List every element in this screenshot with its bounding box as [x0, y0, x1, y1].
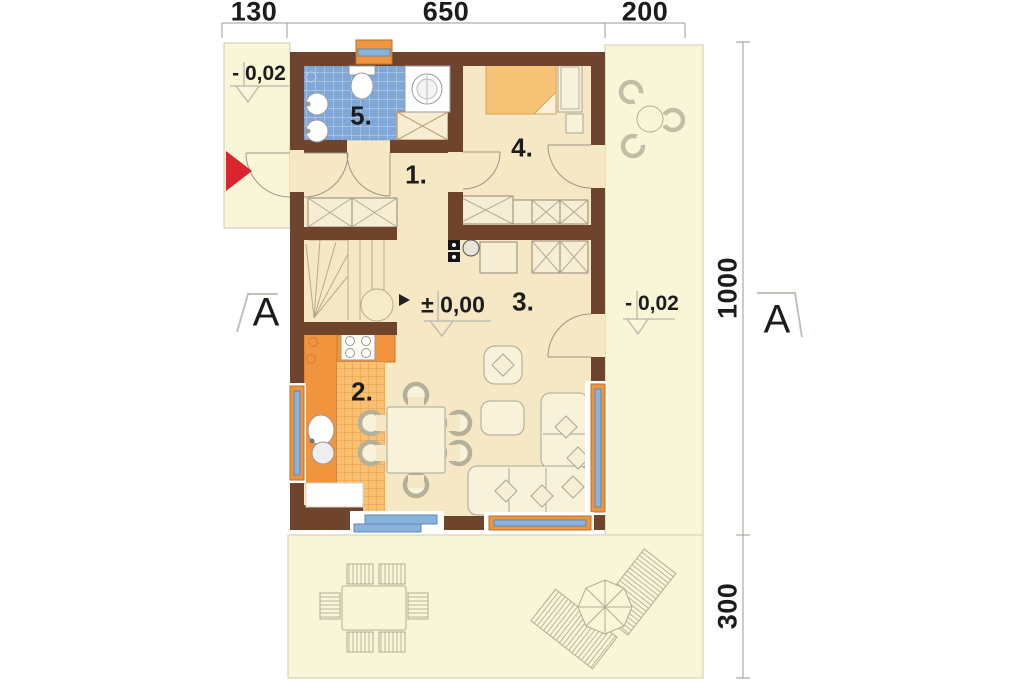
parasol-icon	[578, 580, 632, 634]
coffee-table	[481, 401, 524, 435]
chimney	[356, 40, 392, 64]
living-window-right	[595, 389, 601, 507]
kitchen-window	[294, 391, 300, 475]
level-label-interior: ± 0,00	[421, 292, 485, 319]
room-label-1: 1.	[405, 160, 427, 191]
dim-label-right-2: 300	[713, 583, 744, 630]
section-mark-right: A	[764, 298, 791, 343]
dim-label-top-2: 650	[423, 0, 470, 28]
room-label-3: 3.	[512, 287, 534, 318]
toilet-icon	[351, 73, 373, 99]
bedside-bench	[558, 64, 582, 112]
nightstand	[566, 114, 583, 133]
room-label-4: 4.	[511, 133, 533, 164]
level-label-porch: - 0,02	[232, 62, 286, 86]
section-mark-left: A	[253, 291, 280, 336]
entry-niche	[306, 483, 363, 507]
dim-label-top-1: 130	[231, 0, 278, 28]
dim-label-top-3: 200	[622, 0, 669, 28]
dining-table	[387, 407, 445, 473]
level-label-side: - 0,02	[625, 292, 679, 316]
stove-icon	[341, 333, 375, 360]
garden-dining-table	[342, 586, 406, 630]
sliding-door-panel	[354, 524, 421, 532]
dim-label-right-1: 1000	[713, 257, 744, 319]
room-label-2: 2.	[351, 377, 373, 408]
sliding-door-panel	[365, 515, 437, 524]
garden-round-table	[637, 106, 663, 132]
floor-plan-drawing	[0, 0, 1024, 682]
living-window-bottom	[494, 520, 586, 526]
floor-plan-page: 130 650 200 1000 300 - 0,02 ± 0,00 - 0,0…	[0, 0, 1024, 682]
room-label-5: 5.	[350, 101, 372, 132]
